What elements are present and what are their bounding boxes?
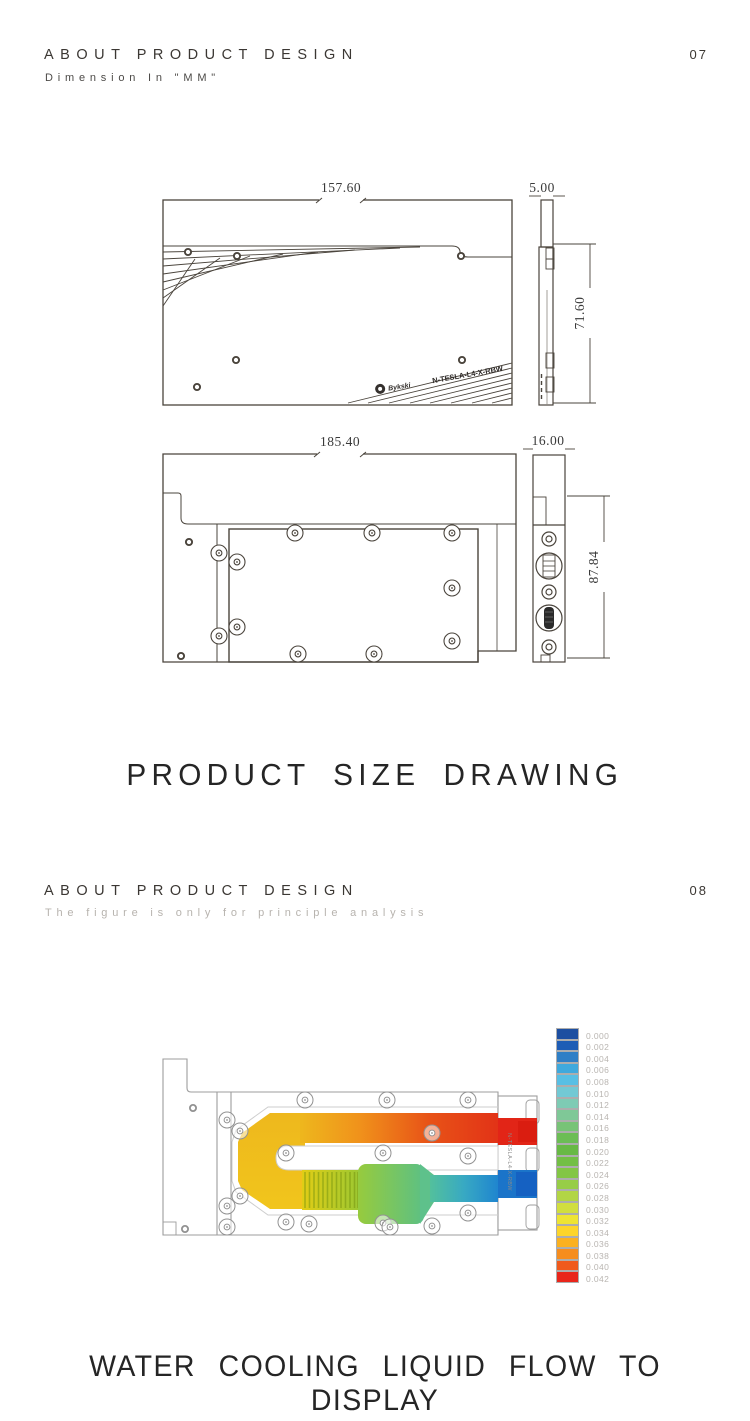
flow-green-section xyxy=(358,1164,424,1224)
flow-cool-arm xyxy=(430,1175,498,1202)
legend-swatch xyxy=(556,1156,579,1168)
top-side-height-dimension: 87.84 xyxy=(567,496,610,658)
legend-swatch xyxy=(556,1167,579,1179)
legend-value: 0.024 xyxy=(579,1170,609,1180)
legend-value: 0.018 xyxy=(579,1135,609,1145)
legend-swatch xyxy=(556,1190,579,1202)
legend-swatch xyxy=(556,1260,579,1272)
legend-swatch xyxy=(556,1132,579,1144)
legend-entry: 0.024 xyxy=(556,1167,609,1179)
legend-entry: 0.002 xyxy=(556,1040,609,1052)
flow-simulation-figure: N-TESLA-L4-X-RBW xyxy=(150,1040,550,1300)
velocity-legend: 0.0000.0020.0040.0060.0080.0100.0120.014… xyxy=(556,1028,609,1283)
legend-swatch xyxy=(556,1098,579,1110)
legend-entry: 0.034 xyxy=(556,1225,609,1237)
legend-value: 0.032 xyxy=(579,1216,609,1226)
legend-entry: 0.000 xyxy=(556,1028,609,1040)
section2-page-number: 08 xyxy=(690,883,708,898)
legend-value: 0.026 xyxy=(579,1181,609,1191)
front-side-width-dimension: 5.00 xyxy=(529,180,565,196)
front-side-height-dimension: 71.60 xyxy=(553,244,596,403)
legend-value: 0.040 xyxy=(579,1262,609,1272)
legend-value: 0.020 xyxy=(579,1147,609,1157)
svg-text:16.00: 16.00 xyxy=(532,433,565,448)
legend-entry: 0.032 xyxy=(556,1214,609,1226)
flow-model-text: N-TESLA-L4-X-RBW xyxy=(506,1133,512,1191)
legend-swatch xyxy=(556,1040,579,1052)
legend-entry: 0.016 xyxy=(556,1121,609,1133)
legend-value: 0.036 xyxy=(579,1239,609,1249)
legend-swatch xyxy=(556,1202,579,1214)
legend-value: 0.008 xyxy=(579,1077,609,1087)
legend-swatch xyxy=(556,1214,579,1226)
legend-value: 0.002 xyxy=(579,1042,609,1052)
legend-swatch xyxy=(556,1063,579,1075)
legend-swatch xyxy=(556,1051,579,1063)
legend-entry: 0.020 xyxy=(556,1144,609,1156)
legend-value: 0.006 xyxy=(579,1065,609,1075)
legend-swatch xyxy=(556,1074,579,1086)
legend-value: 0.038 xyxy=(579,1251,609,1261)
legend-entry: 0.008 xyxy=(556,1074,609,1086)
top-view-width-dimension: 185.40 xyxy=(314,434,366,457)
svg-text:185.40: 185.40 xyxy=(320,434,360,449)
flow-fins xyxy=(302,1170,360,1210)
legend-swatch xyxy=(556,1237,579,1249)
legend-value: 0.010 xyxy=(579,1089,609,1099)
legend-entry: 0.036 xyxy=(556,1237,609,1249)
legend-swatch xyxy=(556,1225,579,1237)
legend-value: 0.022 xyxy=(579,1158,609,1168)
legend-entry: 0.038 xyxy=(556,1248,609,1260)
legend-swatch xyxy=(556,1144,579,1156)
svg-text:5.00: 5.00 xyxy=(529,180,555,195)
size-drawing-caption: PRODUCT SIZE DRAWING xyxy=(0,757,750,793)
front-view-width-dimension: 157.60 xyxy=(316,180,366,203)
front-view-holes xyxy=(185,249,465,390)
legend-entry: 0.018 xyxy=(556,1132,609,1144)
product-size-drawing: 157.60 N-TESLA-L4-X-RBW xyxy=(140,170,630,680)
legend-entry: 0.022 xyxy=(556,1156,609,1168)
legend-value: 0.042 xyxy=(579,1274,609,1284)
legend-value: 0.030 xyxy=(579,1205,609,1215)
svg-text:Bykski: Bykski xyxy=(388,382,412,393)
legend-entry: 0.014 xyxy=(556,1109,609,1121)
svg-text:87.84: 87.84 xyxy=(586,551,601,584)
section2-subtitle: The figure is only for principle analysi… xyxy=(45,907,428,919)
top-side-view xyxy=(533,455,565,662)
section1-page-number: 07 xyxy=(690,47,708,62)
legend-swatch xyxy=(556,1271,579,1283)
top-side-width-dimension: 16.00 xyxy=(523,433,575,449)
legend-value: 0.012 xyxy=(579,1100,609,1110)
legend-entry: 0.012 xyxy=(556,1098,609,1110)
legend-value: 0.016 xyxy=(579,1123,609,1133)
flow-caption: WATER COOLING LIQUID FLOW TO DISPLAY xyxy=(0,1350,750,1418)
svg-text:71.60: 71.60 xyxy=(572,297,587,330)
legend-entry: 0.006 xyxy=(556,1063,609,1075)
legend-value: 0.034 xyxy=(579,1228,609,1238)
legend-entry: 0.004 xyxy=(556,1051,609,1063)
legend-value: 0.014 xyxy=(579,1112,609,1122)
legend-value: 0.004 xyxy=(579,1054,609,1064)
legend-entry: 0.010 xyxy=(556,1086,609,1098)
legend-swatch xyxy=(556,1028,579,1040)
legend-swatch xyxy=(556,1248,579,1260)
legend-swatch xyxy=(556,1121,579,1133)
legend-swatch xyxy=(556,1086,579,1098)
legend-entry: 0.026 xyxy=(556,1179,609,1191)
legend-value: 0.000 xyxy=(579,1031,609,1041)
legend-entry: 0.042 xyxy=(556,1271,609,1283)
legend-entry: 0.028 xyxy=(556,1190,609,1202)
legend-swatch xyxy=(556,1179,579,1191)
front-side-view xyxy=(539,200,554,405)
svg-text:157.60: 157.60 xyxy=(321,180,361,195)
legend-swatch xyxy=(556,1109,579,1121)
legend-value: 0.028 xyxy=(579,1193,609,1203)
top-view-screws xyxy=(178,525,460,662)
section1-title: ABOUT PRODUCT DESIGN xyxy=(44,47,359,63)
front-view-model-text: N-TESLA-L4-X-RBW xyxy=(431,364,504,385)
legend-entry: 0.030 xyxy=(556,1202,609,1214)
product-design-page: ABOUT PRODUCT DESIGN 07 Dimension In "MM… xyxy=(0,0,750,1421)
flow-hot-arm xyxy=(300,1113,498,1143)
legend-entry: 0.040 xyxy=(556,1260,609,1272)
section2-title: ABOUT PRODUCT DESIGN xyxy=(44,883,359,899)
section1-subtitle: Dimension In "MM" xyxy=(45,72,220,84)
